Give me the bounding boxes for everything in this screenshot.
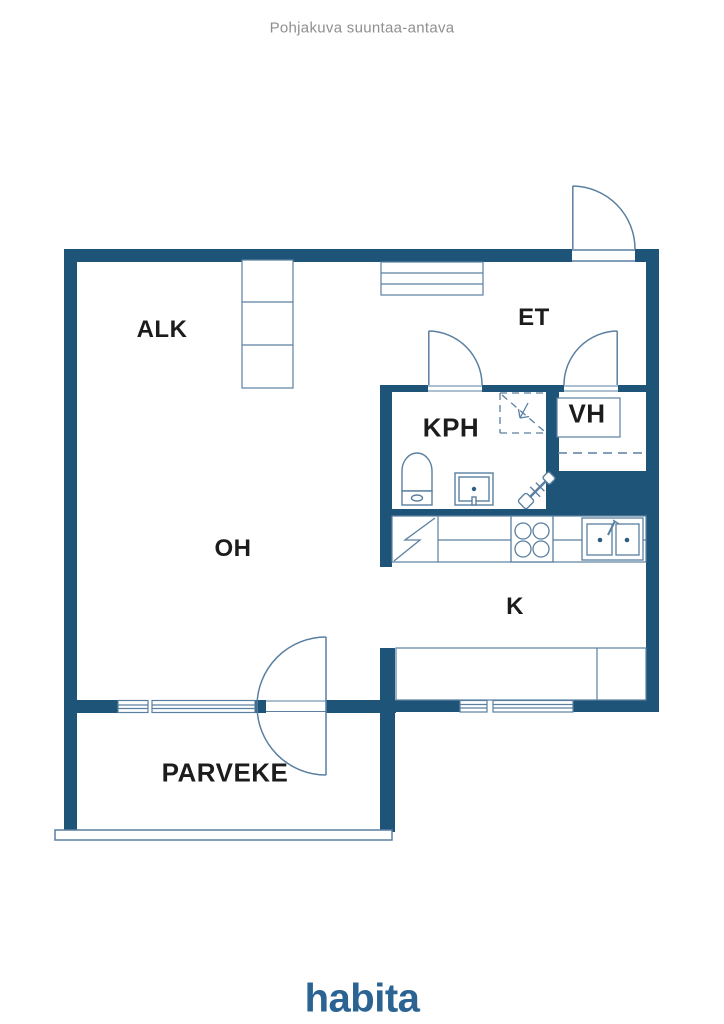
kitchen-island (396, 648, 646, 700)
wall-k-south-a (396, 700, 460, 712)
wall-kph-vh (546, 385, 559, 480)
room-label-alk: ALK (137, 316, 188, 344)
wall-balcony-right (380, 648, 395, 832)
wall-right (646, 249, 659, 712)
wall-k-south-b (573, 700, 659, 712)
room-label-k: K (506, 593, 524, 621)
bathroom-sink-icon (455, 473, 493, 505)
wall-vh-south-block (546, 471, 646, 516)
room-label-et: ET (518, 304, 550, 332)
wall-top-left (64, 249, 572, 262)
balcony-door-icon (257, 637, 326, 775)
kitchen-sink-icon (582, 518, 643, 560)
toilet-icon (402, 453, 432, 505)
wall-et-kph-c (618, 385, 646, 392)
room-label-kph: KPH (423, 413, 479, 444)
balcony-railing (55, 830, 392, 840)
wall-oh-south-a (64, 700, 118, 713)
vh-door-icon (564, 331, 618, 391)
entrance-door-icon (572, 186, 635, 261)
shower-icon (500, 393, 546, 433)
floor-plan-page: Pohjakuva suuntaa-antava (0, 0, 724, 1024)
alk-wardrobe (242, 260, 293, 388)
habita-logo: habita (305, 977, 420, 1022)
wall-kph-south (392, 509, 546, 516)
wall-oh-south-c (326, 700, 396, 713)
kitchen-counter (392, 516, 646, 562)
kph-door-icon (428, 331, 482, 391)
fridge-icon (394, 518, 435, 561)
room-label-oh: OH (215, 535, 252, 563)
wall-kph-west (380, 385, 392, 567)
wall-left (64, 249, 77, 832)
et-coat-rack (381, 262, 483, 295)
wall-oh-south-b (255, 700, 266, 713)
disclaimer-text: Pohjakuva suuntaa-antava (270, 20, 455, 37)
room-label-parveke: PARVEKE (162, 758, 289, 789)
stove-icon (511, 516, 553, 562)
room-label-vh: VH (568, 399, 605, 430)
